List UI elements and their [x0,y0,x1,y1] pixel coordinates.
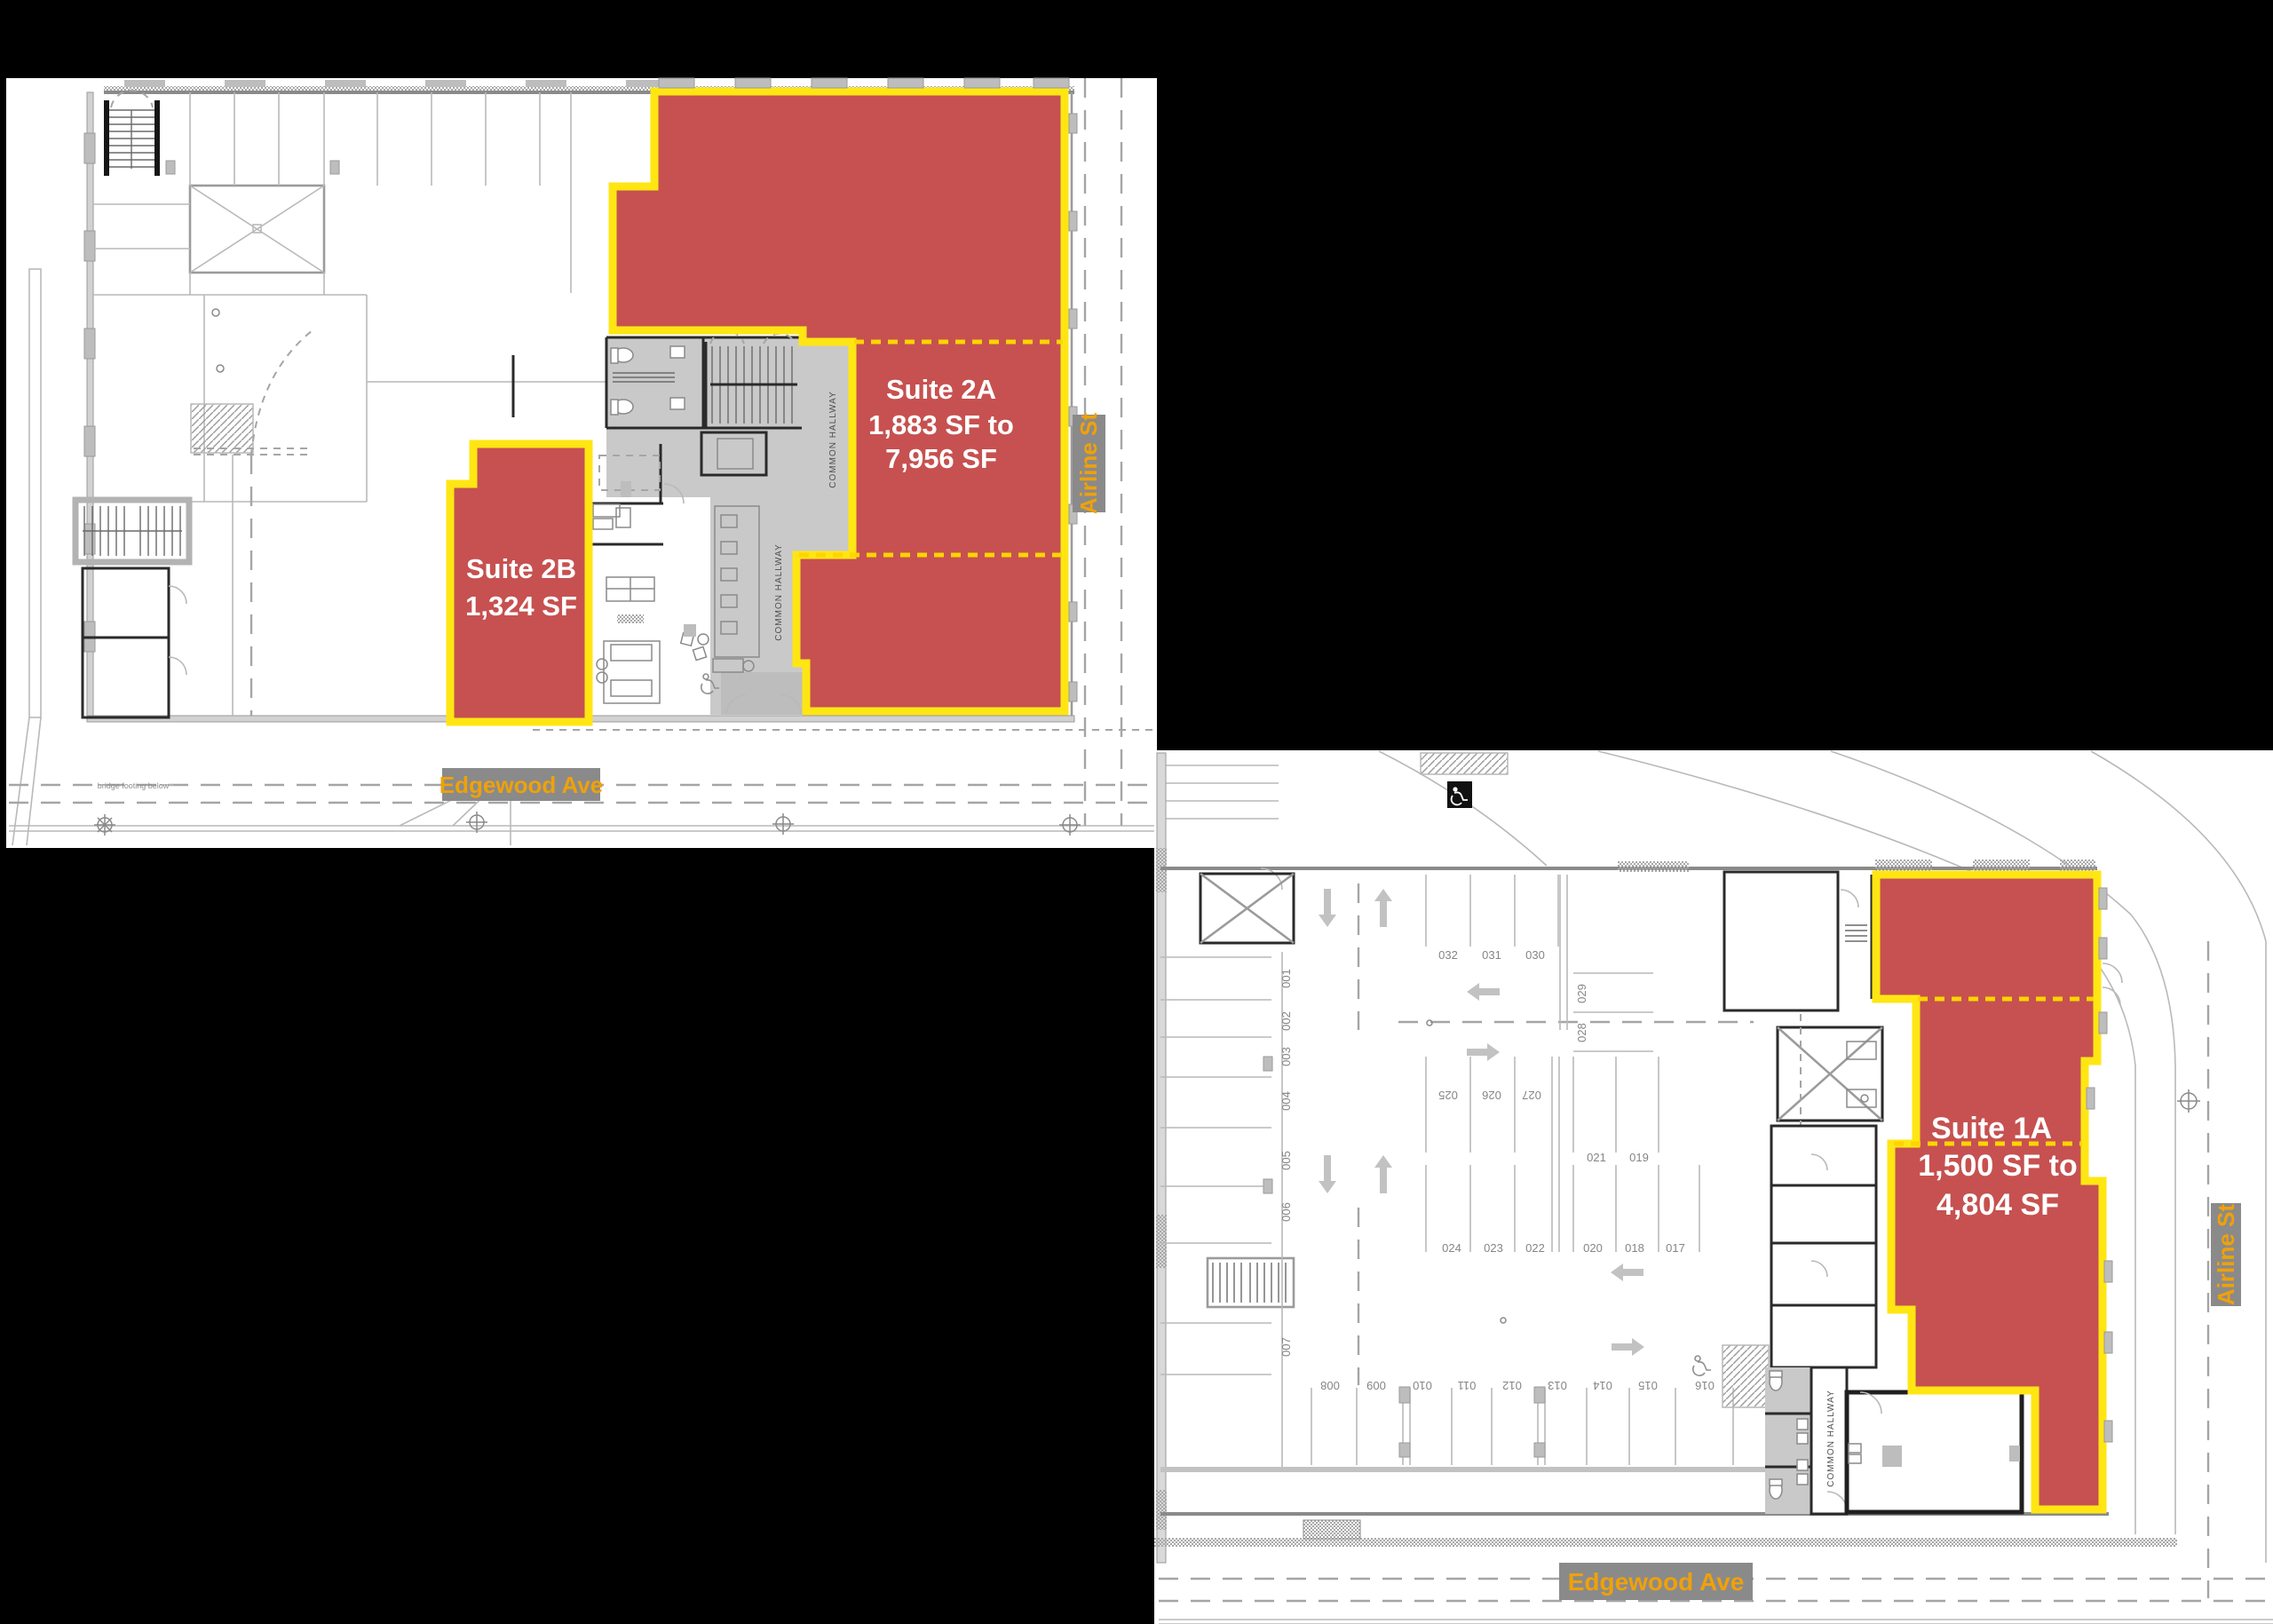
svg-text:Edgewood Ave: Edgewood Ave [1568,1568,1745,1596]
svg-text:022: 022 [1525,1241,1545,1255]
svg-text:032: 032 [1438,948,1458,962]
svg-text:014: 014 [1593,1379,1612,1392]
svg-text:001: 001 [1279,969,1293,988]
suite-1a-range2: 4,804 SF [1936,1188,2059,1222]
svg-text:006: 006 [1279,1202,1293,1222]
svg-text:Airline St: Airline St [2213,1204,2239,1305]
svg-text:020: 020 [1583,1241,1603,1255]
svg-text:013: 013 [1548,1379,1567,1392]
svg-text:021: 021 [1587,1151,1606,1164]
plan1-street-airline: Airline St [2211,1203,2241,1306]
suite-2a-range2: 7,956 SF [885,443,997,474]
svg-text:012: 012 [1502,1379,1522,1392]
svg-text:017: 017 [1666,1241,1685,1255]
svg-text:023: 023 [1484,1241,1503,1255]
svg-text:015: 015 [1638,1379,1658,1392]
svg-text:003: 003 [1279,1047,1293,1066]
svg-text:031: 031 [1482,948,1501,962]
svg-text:016: 016 [1695,1379,1715,1392]
suite-2a-name: Suite 2A [886,374,996,405]
svg-text:007: 007 [1279,1337,1293,1357]
svg-text:026: 026 [1482,1089,1501,1102]
svg-text:025: 025 [1438,1089,1458,1102]
suite-1a-name: Suite 1A [1931,1112,2052,1145]
suite-2a-range1: 1,883 SF to [868,409,1014,440]
svg-text:Edgewood Ave: Edgewood Ave [440,772,603,798]
svg-text:008: 008 [1320,1379,1340,1392]
plan2-common-hallway-label-1: COMMON HALLWAY [828,391,838,487]
svg-text:028: 028 [1575,1023,1588,1042]
svg-text:010: 010 [1413,1379,1432,1392]
svg-text:002: 002 [1279,1011,1293,1031]
svg-text:024: 024 [1442,1241,1461,1255]
svg-text:029: 029 [1575,984,1588,1003]
svg-text:030: 030 [1525,948,1545,962]
svg-text:019: 019 [1629,1151,1649,1164]
plan1-common-hallway-label: COMMON HALLWAY [1826,1390,1836,1486]
plan2-common-hallway-label-2: COMMON HALLWAY [774,543,784,640]
suite-2b-name: Suite 2B [466,553,576,584]
svg-text:004: 004 [1279,1091,1293,1111]
accessible-parking-icon [1447,781,1472,808]
suite-1a-range1: 1,500 SF to [1918,1149,2078,1183]
plan1-ramp-hatch [1723,1345,1769,1407]
plan2-street-airline: Airline St [1073,413,1105,514]
suite-2b-area: 1,324 SF [465,590,577,622]
plan1-street-edgewood: Edgewood Ave [1559,1563,1753,1600]
plan2-street-edgewood: Edgewood Ave [440,768,603,801]
svg-text:Airline St: Airline St [1075,413,1102,514]
svg-text:011: 011 [1458,1379,1477,1392]
suite-2a-label: Suite 2A 1,883 SF to 7,956 SF [868,374,1014,474]
svg-text:005: 005 [1279,1151,1293,1170]
svg-text:009: 009 [1366,1379,1386,1392]
page: bridge footing below Suite 2A 1,883 SF t… [0,0,2273,1624]
svg-text:018: 018 [1625,1241,1644,1255]
plan-second-floor: bridge footing below Suite 2A 1,883 SF t… [6,78,1157,848]
svg-text:027: 027 [1522,1089,1541,1102]
bridge-note: bridge footing below [98,781,170,790]
plan-first-floor: Suite 1A 1,500 SF to 4,804 SF 032 031 03… [1154,750,2273,1624]
